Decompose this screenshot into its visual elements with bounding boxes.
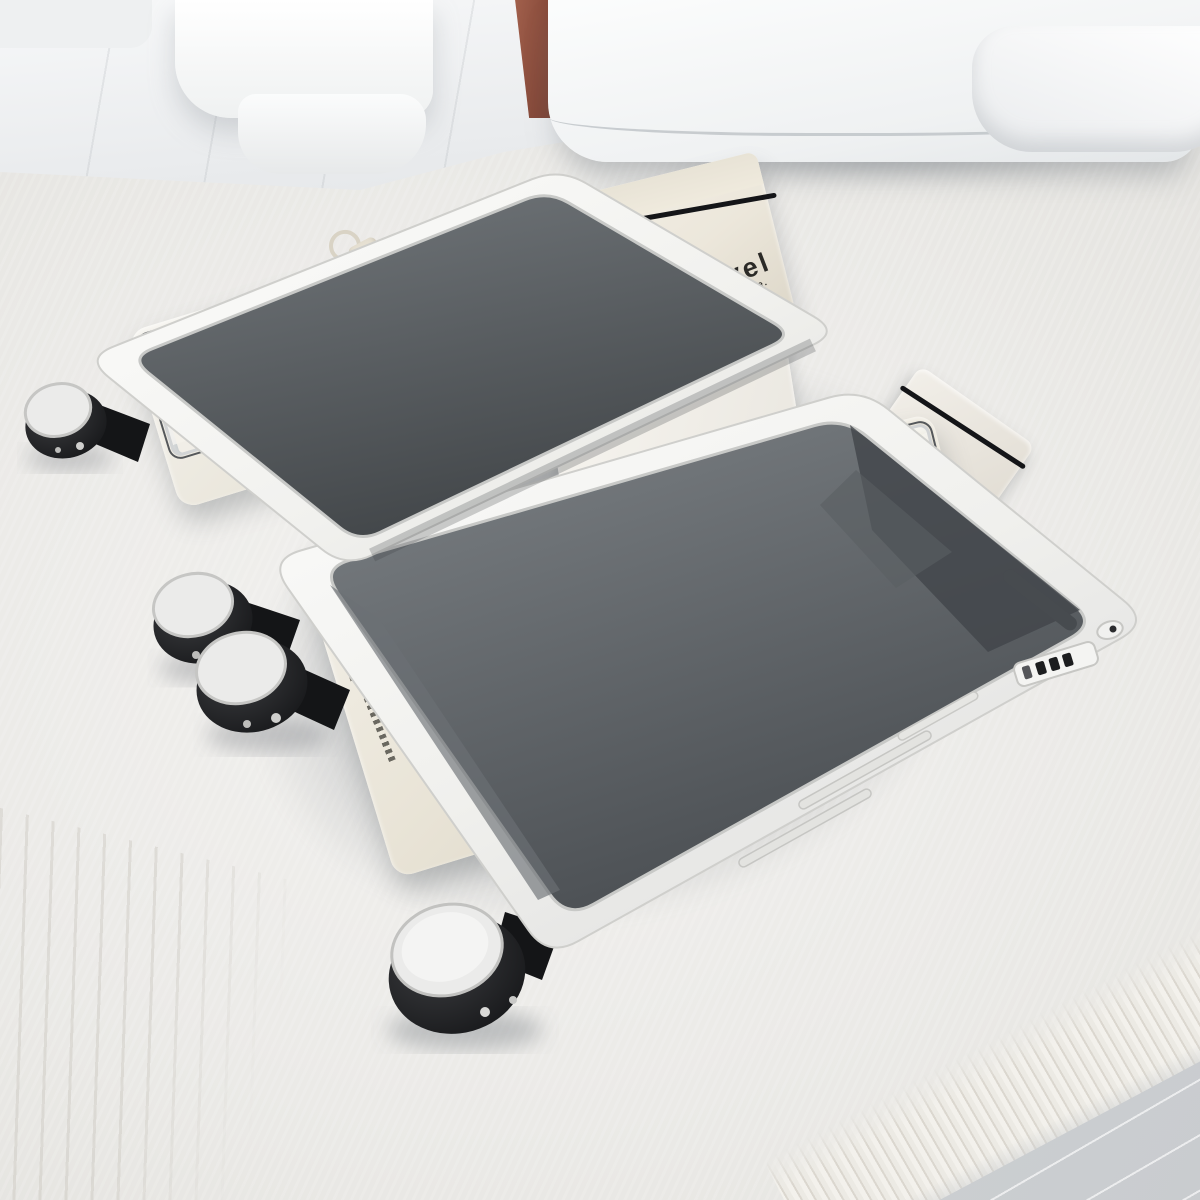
open-suitcase <box>0 0 1200 1200</box>
product-photo-scene: No. 1 travel travel to live. <box>0 0 1200 1200</box>
